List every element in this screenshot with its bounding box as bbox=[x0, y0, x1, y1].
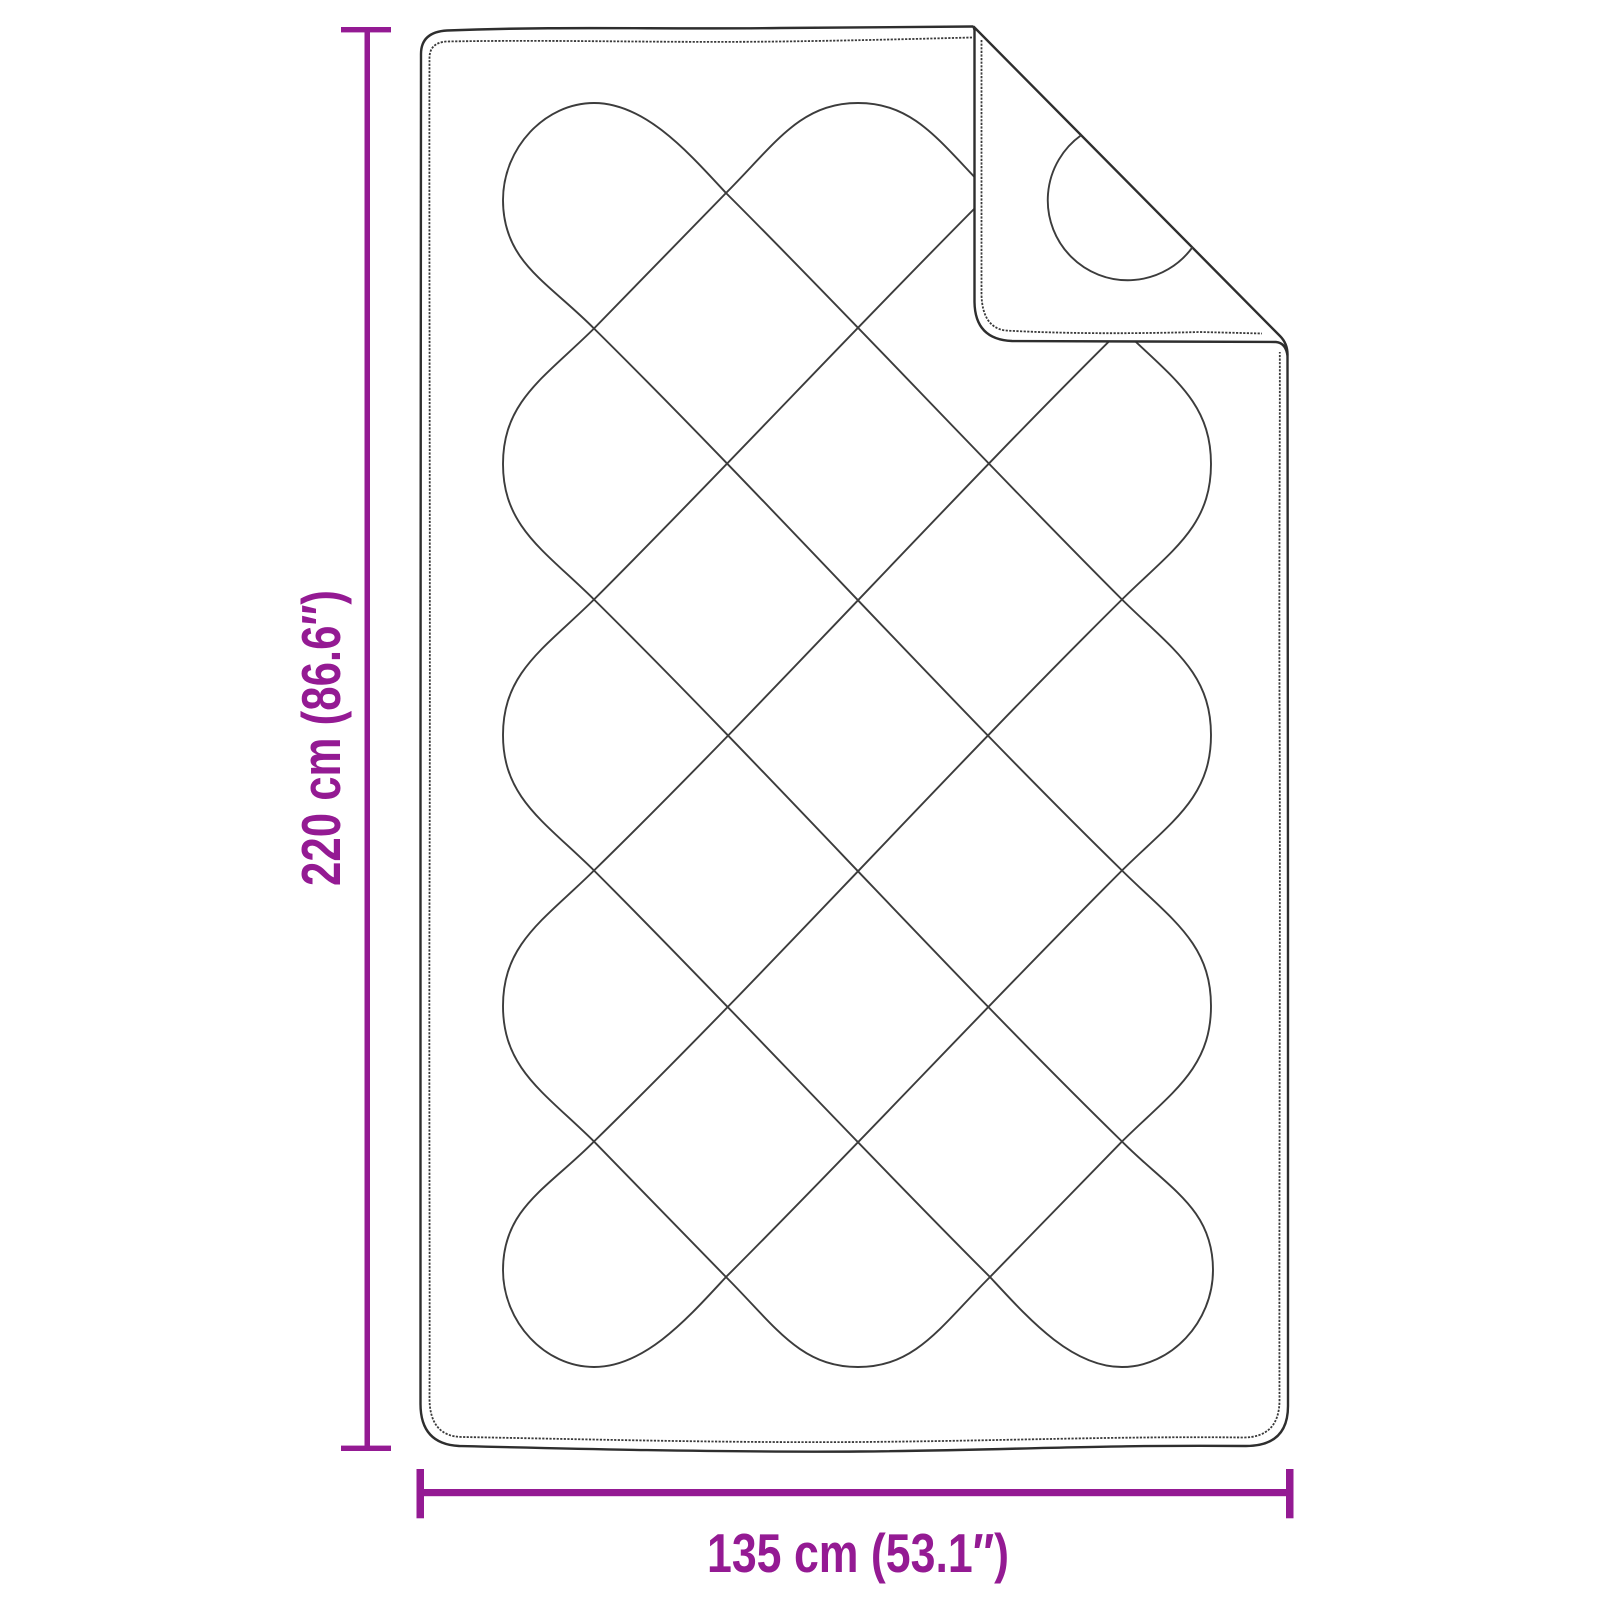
svg-text:220 cm (86.6″): 220 cm (86.6″) bbox=[290, 590, 352, 886]
svg-text:135 cm (53.1″): 135 cm (53.1″) bbox=[707, 1522, 1009, 1584]
